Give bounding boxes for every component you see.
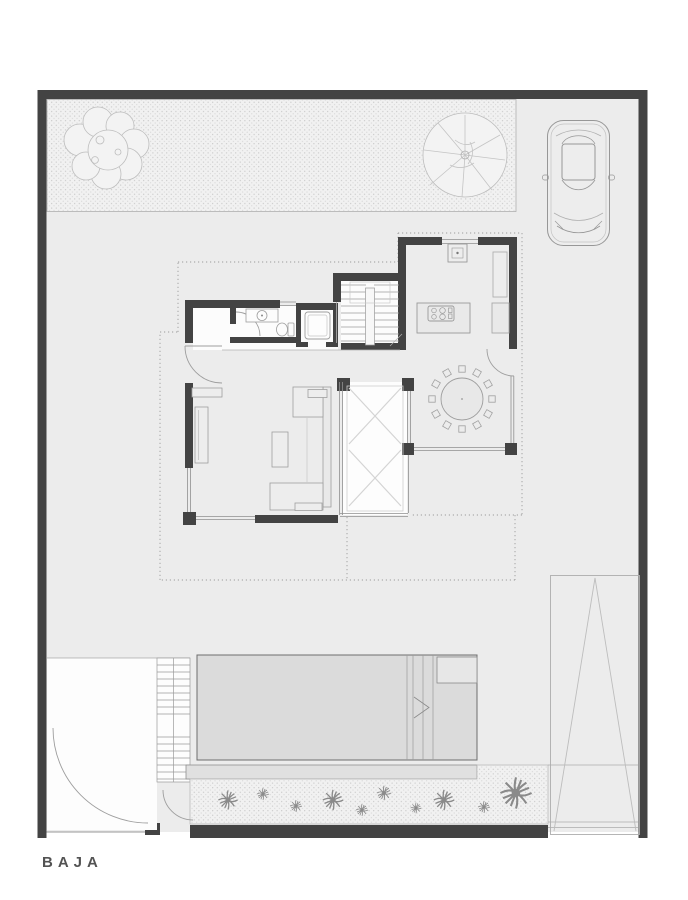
stair-wall-north	[333, 273, 406, 281]
stair-wall-west	[333, 273, 341, 302]
pool-bench-ledge	[437, 657, 477, 683]
side-table	[272, 432, 288, 467]
site-wall-south	[190, 825, 548, 838]
stair-rail	[366, 288, 375, 345]
palm-tree	[423, 113, 507, 197]
kitchen-counter	[492, 303, 509, 333]
kitchen-wall-west	[398, 237, 406, 350]
parked-car	[543, 121, 615, 246]
sofa-back	[323, 387, 331, 507]
kitchen-island	[417, 303, 470, 333]
elevator-wall-west	[296, 303, 301, 347]
column	[505, 443, 517, 455]
living-wall-south	[255, 515, 338, 523]
elevator	[305, 312, 330, 339]
elevator-cab	[305, 312, 330, 339]
site-wall-west	[38, 90, 47, 838]
outdoor-staircase	[157, 658, 190, 782]
living-corner-post	[183, 512, 196, 525]
floor-label: BAJA	[42, 854, 103, 871]
column	[337, 378, 350, 391]
bath-partition	[230, 308, 236, 324]
sofa-pillow	[295, 503, 322, 511]
console-shelf	[192, 388, 222, 397]
elevator-wall-north	[296, 303, 338, 310]
floor-plan-drawing	[0, 0, 688, 900]
swimming-pool	[197, 655, 477, 760]
kitchen-wall-east	[509, 237, 517, 349]
floor-plan-page: BAJA	[0, 0, 688, 900]
entry-court	[47, 658, 157, 830]
bath-wall-south	[230, 337, 296, 343]
site-wall-north	[38, 90, 648, 99]
tall-cabinet	[493, 252, 507, 297]
elevator-wall-east	[333, 303, 338, 347]
front-garden	[47, 100, 516, 212]
column	[402, 378, 414, 391]
overflow-gutter	[186, 765, 477, 779]
column	[402, 443, 414, 455]
sofa-pillow	[308, 390, 327, 398]
bath-wall-north	[185, 300, 280, 308]
bath-wall-west	[185, 300, 193, 343]
tv-unit	[195, 407, 208, 463]
